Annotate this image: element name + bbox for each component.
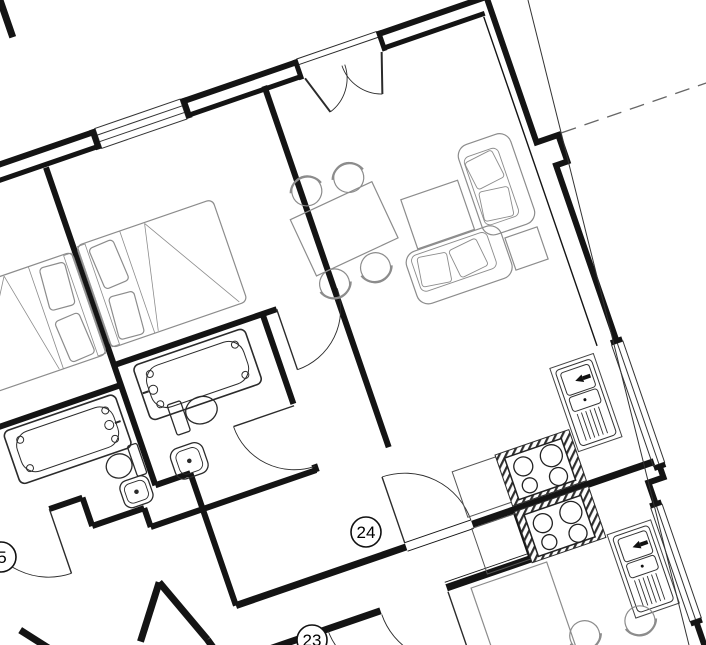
floor-plan-canvas: 24 23 5 xyxy=(0,0,706,645)
dining-chair xyxy=(329,158,369,197)
window xyxy=(89,97,192,150)
kitchen-unit-23 xyxy=(471,471,679,645)
dining-table xyxy=(290,182,398,276)
wall xyxy=(0,0,13,37)
reference-grid-line xyxy=(562,62,706,133)
walls xyxy=(0,0,706,645)
double-door xyxy=(293,30,401,118)
double-bed xyxy=(0,252,107,404)
dining-chair xyxy=(356,248,396,287)
washbasin xyxy=(118,474,155,510)
unit-number: 24 xyxy=(357,523,376,542)
wall-inner-face xyxy=(484,17,597,346)
sofa xyxy=(455,130,538,238)
door-threshold xyxy=(445,553,531,585)
rotated-plan-group xyxy=(0,0,706,645)
sofa xyxy=(403,223,515,308)
bedroom-furniture xyxy=(0,199,249,404)
unit-number: 23 xyxy=(303,631,322,645)
wall xyxy=(159,571,224,645)
bathtub xyxy=(132,328,262,421)
door-arc xyxy=(328,590,471,645)
bathtub xyxy=(3,394,133,485)
wall xyxy=(485,0,628,347)
unit-number: 5 xyxy=(0,548,7,567)
wall xyxy=(0,480,151,597)
wall xyxy=(644,464,672,506)
door-arc xyxy=(382,454,471,543)
wall xyxy=(114,309,277,365)
wall xyxy=(262,314,316,472)
window xyxy=(610,336,666,470)
unit-labels: 24 23 5 xyxy=(0,517,381,645)
unit-label-24: 24 xyxy=(351,517,381,547)
dining-chair xyxy=(565,616,605,645)
kitchen-unit-24 xyxy=(431,353,632,521)
floor-plan-drawing: 24 23 5 xyxy=(0,0,706,645)
wall xyxy=(0,13,485,240)
living-room-furniture xyxy=(278,109,552,338)
wall xyxy=(20,620,63,645)
kitchen-sink xyxy=(607,520,679,618)
wall xyxy=(46,168,155,486)
wall xyxy=(264,86,388,447)
doors xyxy=(0,30,583,645)
door-threshold xyxy=(405,520,474,551)
